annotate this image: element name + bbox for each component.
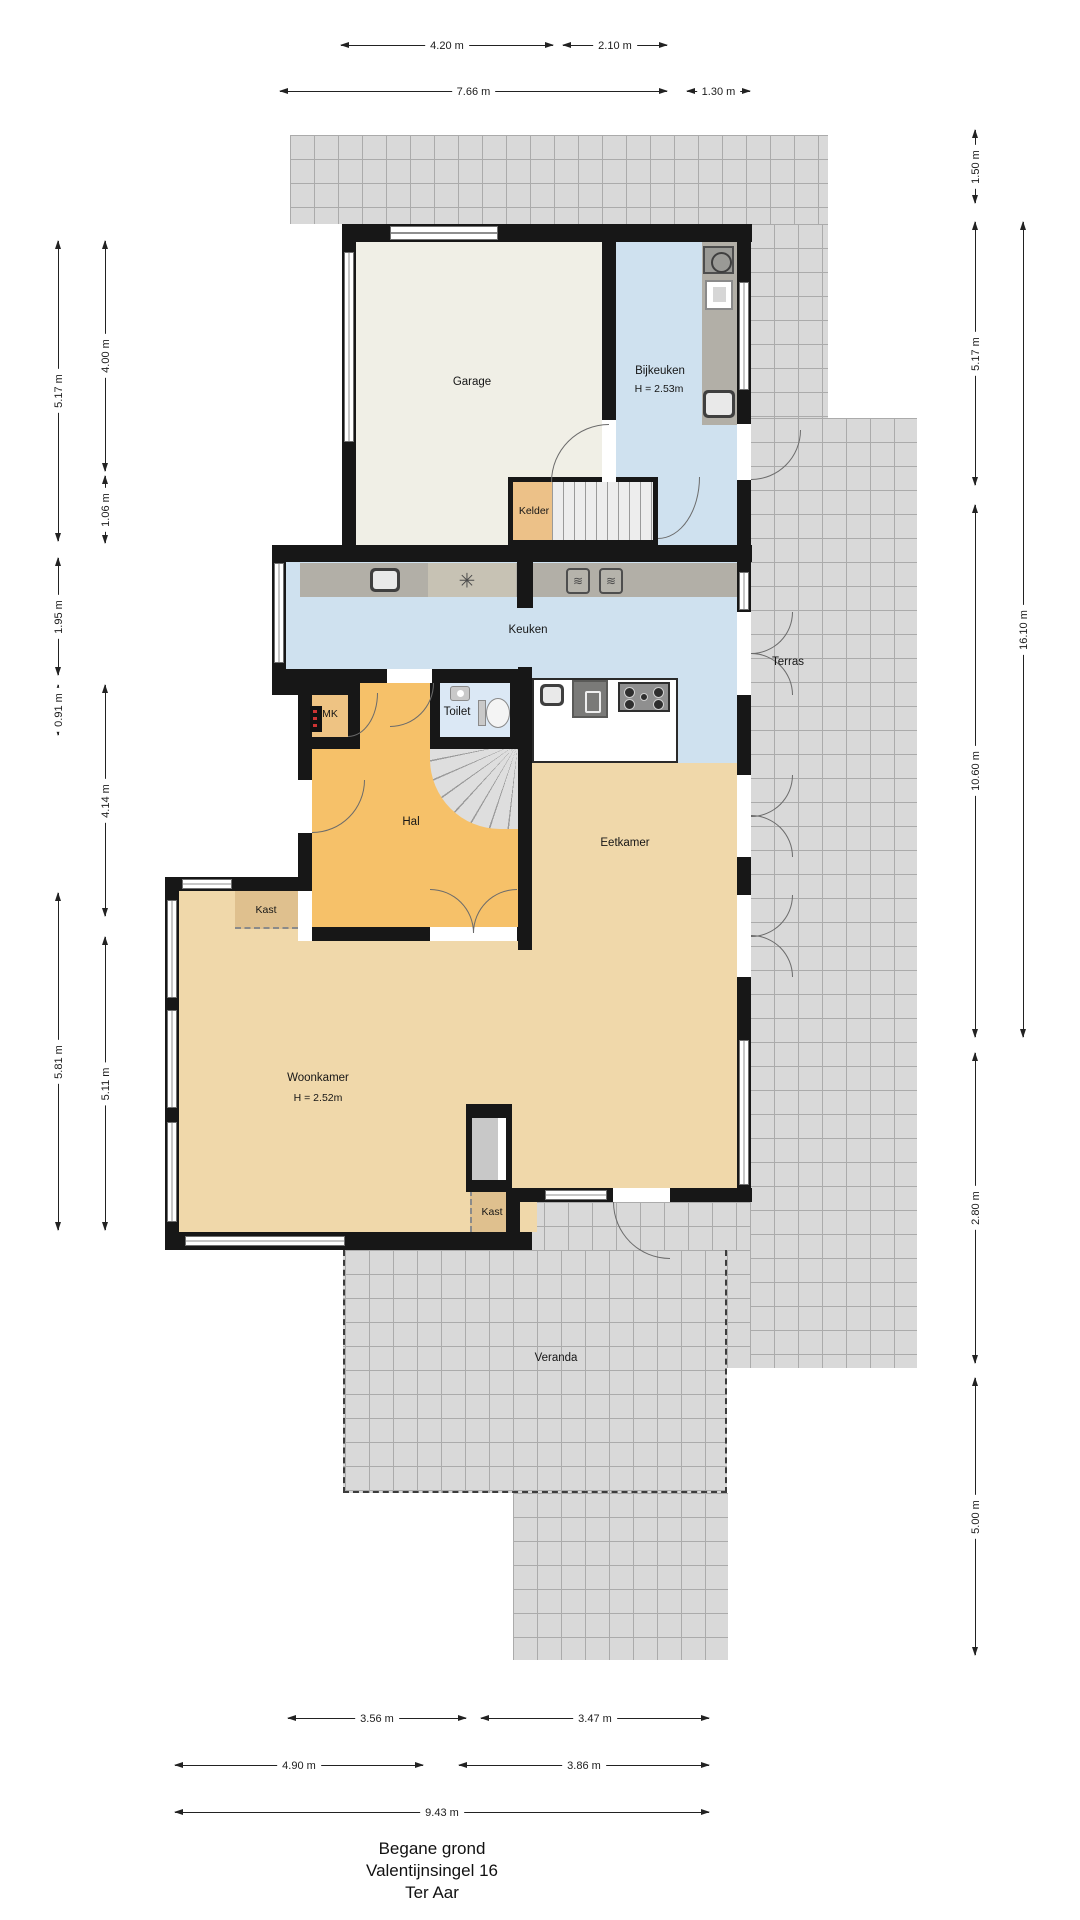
dishwasher-icon [572, 680, 608, 718]
sink-icon [703, 390, 735, 418]
window [545, 1190, 607, 1200]
toilet-sink-icon [450, 686, 470, 701]
wall [506, 1188, 520, 1250]
tiles-bottom-path [513, 1493, 728, 1660]
dimension-left-inner-2: 1.06 m [105, 476, 106, 543]
wall [737, 224, 751, 560]
hob-icon [618, 682, 670, 712]
fireplace-slot [498, 1118, 506, 1180]
title-block: Begane grond Valentijnsingel 16 Ter Aar [252, 1838, 612, 1904]
dimension-top-1: 4.20 m [341, 45, 553, 46]
oven-waves: ≋ [606, 574, 616, 588]
extractor-icon: ✳ [459, 569, 476, 594]
dimension-bottom-3: 4.90 m [175, 1765, 423, 1766]
wall [430, 737, 522, 749]
wall [517, 545, 533, 608]
dimension-left-inner-1: 4.00 m [105, 241, 106, 471]
dimension-top-3: 7.66 m [280, 91, 667, 92]
wall [298, 737, 360, 749]
veranda-area [343, 1250, 727, 1493]
floor-title: Begane grond [252, 1838, 612, 1860]
terras-door-gap [737, 775, 751, 857]
window [739, 572, 749, 610]
window [274, 563, 284, 663]
room-label-hal: Hal [402, 816, 419, 828]
dimension-right-inner-2: 5.17 m [975, 222, 976, 485]
terras-tiles-strip [727, 1250, 750, 1368]
room-label-keuken: Keuken [508, 624, 547, 636]
terras-tiles-right-narrow [750, 224, 828, 418]
dimension-left-outer-2: 1.95 m [58, 558, 59, 675]
window [167, 1010, 177, 1108]
kelder-stairs [552, 482, 653, 540]
dimension-left-inner-4: 5.11 m [105, 937, 106, 1230]
room-label-mk: MK [322, 708, 338, 720]
room-label-kast-woonkamer: Kast [481, 1206, 502, 1218]
dimension-right-outer-1: 16.10 m [1023, 222, 1024, 1037]
wall [602, 242, 616, 420]
dimension-top-2: 2.10 m [563, 45, 667, 46]
toilet-bowl-icon [478, 700, 486, 726]
dimension-left-inner-3: 4.14 m [105, 685, 106, 916]
oven-icon: ≋ [566, 568, 590, 594]
veranda-door-gap [613, 1188, 670, 1202]
wall [518, 667, 532, 950]
room-height-woonkamer: H = 2.52m [294, 1092, 343, 1104]
boiler-icon [705, 280, 733, 310]
island-sink-icon [540, 684, 564, 706]
window [344, 252, 354, 442]
dimension-left-outer-3: 0.91 m [58, 685, 59, 735]
dimension-right-inner-5: 5.00 m [975, 1378, 976, 1655]
terras-tiles-top [290, 135, 828, 224]
meter-panel-icon [310, 706, 322, 732]
sink-icon [370, 568, 400, 592]
toilet-bowl-icon [486, 698, 510, 728]
dimension-bottom-5: 9.43 m [175, 1812, 709, 1813]
wall [272, 545, 752, 562]
room-label-bijkeuken: Bijkeuken [635, 365, 685, 377]
room-label-terras: Terras [772, 656, 804, 668]
city-line: Ter Aar [252, 1882, 612, 1904]
room-label-veranda: Veranda [535, 1352, 578, 1364]
dimension-right-inner-4: 2.80 m [975, 1053, 976, 1363]
floorplan-begane-grond: ✳ ≋ ≋ Garage Bijkeuken H = 2.53m Kelder … [0, 0, 1080, 1920]
fireplace-insert [472, 1118, 498, 1180]
door-gap [737, 424, 751, 480]
window [167, 900, 177, 998]
room-label-kelder: Kelder [519, 505, 549, 517]
window [167, 1122, 177, 1222]
dimension-right-inner-3: 10.60 m [975, 505, 976, 1037]
wall [517, 927, 532, 941]
room-label-kast-hal: Kast [255, 904, 276, 916]
room-height-bijkeuken: H = 2.53m [635, 383, 684, 395]
door-gap [387, 669, 432, 683]
window [739, 282, 749, 390]
room-eetkamer [528, 763, 737, 1188]
terras-door-gap [737, 895, 751, 977]
dimension-bottom-1: 3.56 m [288, 1718, 466, 1719]
front-door-gap [298, 780, 312, 833]
room-label-eetkamer: Eetkamer [600, 837, 649, 849]
room-label-toilet: Toilet [444, 706, 471, 718]
room-label-woonkamer: Woonkamer [287, 1072, 349, 1084]
oven-icon: ≋ [599, 568, 623, 594]
window [182, 879, 232, 889]
address-line: Valentijnsingel 16 [252, 1860, 612, 1882]
dimension-right-inner-1: 1.50 m [975, 130, 976, 203]
dimension-top-4: 1.30 m [687, 91, 750, 92]
terras-tiles-right-wide [750, 418, 917, 1368]
washing-machine-icon [703, 246, 734, 274]
dimension-left-outer-1: 5.17 m [58, 241, 59, 541]
dimension-left-outer-4: 5.81 m [58, 893, 59, 1230]
terras-door-gap [737, 612, 751, 695]
window [390, 226, 498, 240]
dimension-bottom-4: 3.86 m [459, 1765, 709, 1766]
window [185, 1236, 345, 1246]
room-label-garage: Garage [453, 376, 491, 388]
oven-waves: ≋ [573, 574, 583, 588]
window [739, 1040, 749, 1185]
wall [312, 927, 430, 941]
dimension-bottom-2: 3.47 m [481, 1718, 709, 1719]
